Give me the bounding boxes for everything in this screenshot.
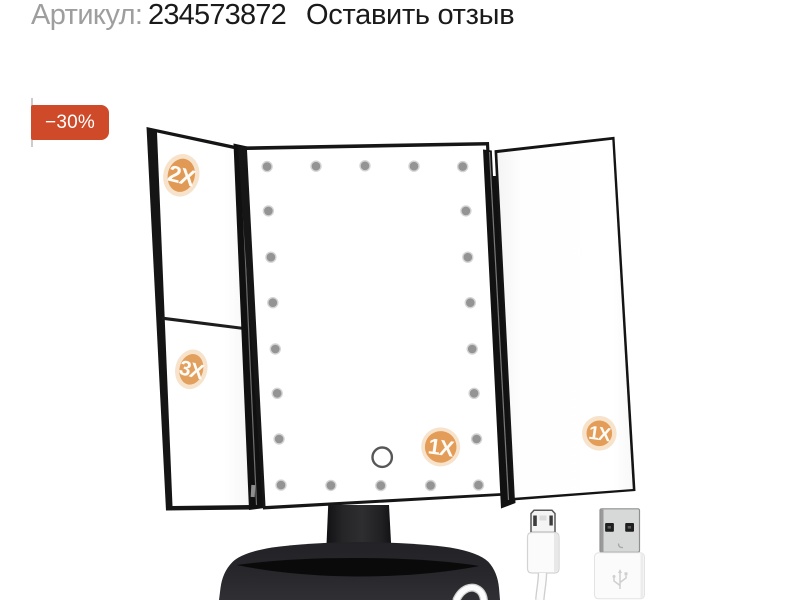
- svg-text:1X: 1X: [587, 423, 612, 447]
- svg-text:1X: 1X: [427, 433, 456, 461]
